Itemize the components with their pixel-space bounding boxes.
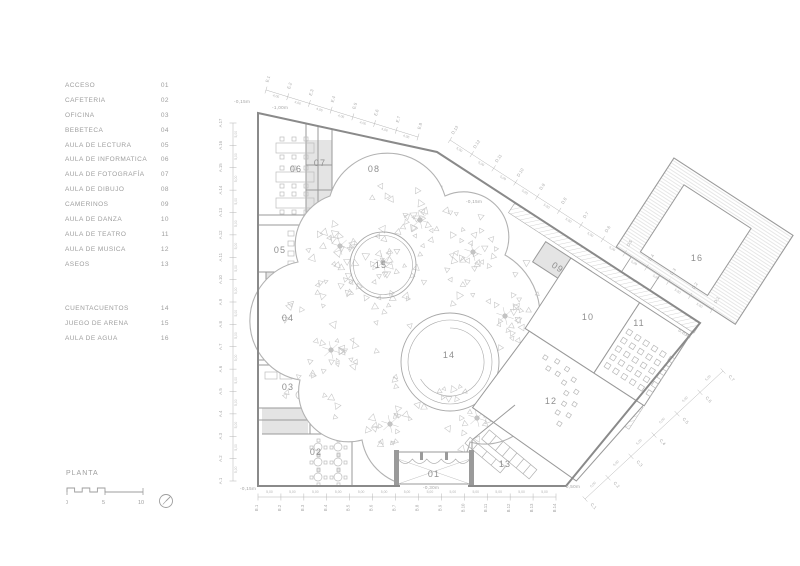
grid-axis (266, 90, 418, 137)
grid-dim: 5,00 (541, 490, 548, 494)
chair (292, 210, 296, 214)
cafe-table (334, 458, 342, 466)
room-label: 15 (375, 260, 387, 270)
room-label: 12 (545, 396, 557, 406)
grid-tick-label: A.16 (218, 140, 223, 149)
grid-dim: 5,00 (234, 399, 238, 406)
grid-tick (557, 208, 561, 214)
room-label: 16 (691, 253, 703, 263)
grid-dim: 5,00 (455, 146, 463, 153)
grid-tick-label: D.13 (450, 124, 459, 135)
grid-tick-label: D.12 (472, 138, 481, 149)
grid-tick-label: B.14 (552, 503, 557, 512)
level-annotation: -0,50m (564, 484, 580, 489)
grid-tick (601, 236, 605, 242)
desk (288, 231, 294, 236)
grid-tick-label: C.3 (635, 459, 644, 468)
grid-dim: 5,00 (681, 396, 689, 404)
desk (288, 241, 294, 246)
entrance-canopy (394, 450, 474, 485)
grid-tick-label: A.11 (218, 252, 223, 261)
grid-dim: 5,00 (450, 490, 457, 494)
grid-tick-label: B.7 (392, 504, 397, 511)
grid-tick-label: A.14 (218, 185, 223, 194)
level-annotation: -0,15m (466, 199, 482, 204)
grid-tick-label: C.7 (727, 374, 736, 383)
grid-tick-label: C.1 (589, 502, 598, 511)
grid-dim: 4,06 (294, 100, 302, 106)
chair (337, 468, 340, 471)
grid-tick-label: D.7 (582, 210, 590, 219)
grid-dim: 5,00 (589, 481, 597, 489)
grid-tick-label: B.1 (254, 504, 259, 511)
floor-plan-sheet: ACCESO01CAFETERIA02OFICINA03BEBETECA04AU… (0, 0, 800, 566)
grid-tick (514, 180, 518, 186)
grid-dim: 5,00 (234, 310, 238, 317)
grid-dim: 5,00 (635, 438, 643, 446)
grid-dim: 5,00 (518, 490, 525, 494)
chair (324, 476, 327, 479)
room-label: 07 (314, 158, 326, 168)
room-label: 11 (633, 318, 645, 328)
grid-dim: 5,00 (565, 217, 573, 224)
level-annotation: -1,00m (272, 105, 288, 110)
grid-tick-label: C.5 (681, 417, 690, 426)
chair (292, 184, 296, 188)
grid-tick-label: A.7 (218, 343, 223, 350)
grid-tick-label: B.3 (300, 504, 305, 511)
grid-tick-label: B.2 (277, 504, 282, 511)
grid-dim: 5,00 (234, 355, 238, 362)
grid-tick (535, 194, 539, 200)
level-annotation: -0,15m (240, 486, 256, 491)
grid-dim: 5,00 (704, 374, 712, 382)
chair (292, 192, 296, 196)
room-label: 05 (274, 245, 286, 255)
chair (344, 446, 347, 449)
grid-tick-label: E.3 (308, 88, 315, 96)
grid-dim: 4,06 (403, 134, 411, 140)
grid-tick-label: A.3 (218, 432, 223, 439)
grid-tick-label: A.8 (218, 321, 223, 328)
grid-tick-label: E.5 (351, 102, 358, 110)
grid-tick-label: A.10 (218, 275, 223, 284)
chair (337, 453, 340, 456)
grid-tick-label: E.2 (286, 81, 293, 89)
grid-line-E: E.14,06E.24,06E.34,06E.44,06E.54,06E.64,… (264, 75, 423, 141)
grid-tick-label: D.8 (560, 196, 568, 205)
room-label: 01 (428, 469, 440, 479)
grid-dim: 5,00 (495, 490, 502, 494)
room-label: 13 (499, 459, 511, 469)
cafe-table (334, 473, 342, 481)
grid-tick-label: E.8 (416, 122, 423, 130)
grid-line-B: B.15,00B.25,00B.35,00B.45,00B.55,00B.65,… (254, 490, 557, 512)
floor-plan-drawing: 09 -1,20m (0, 0, 800, 566)
grid-tick-label: E.7 (395, 115, 402, 123)
chair (324, 446, 327, 449)
grid-tick-label: B.10 (460, 503, 465, 512)
grid-tick-label: D.11 (494, 153, 503, 164)
chair (280, 166, 284, 170)
chair (344, 476, 347, 479)
grid-dim: 4,06 (316, 107, 324, 113)
chair (280, 192, 284, 196)
chair (310, 461, 313, 464)
room-label: 06 (290, 164, 302, 174)
grid-tick-label: A.2 (218, 455, 223, 462)
room-label: 14 (443, 350, 455, 360)
room-label: 04 (282, 313, 294, 323)
grid-dim: 5,00 (312, 490, 319, 494)
grid-dim: 5,00 (234, 444, 238, 451)
shelf (265, 372, 277, 379)
grid-tick-label: A.15 (218, 163, 223, 172)
grid-dim: 5,00 (266, 490, 273, 494)
grid-tick-label: A.4 (218, 410, 223, 417)
grid-dim: 5,00 (472, 490, 479, 494)
grid-tick-label: C.4 (658, 438, 667, 447)
grid-tick-label: A.12 (218, 230, 223, 239)
grid-tick-label: B.8 (414, 504, 419, 511)
grid-dim: 5,00 (234, 243, 238, 250)
chair (330, 476, 333, 479)
grid-dim: 5,00 (234, 466, 238, 473)
grid-dim: 5,00 (612, 460, 620, 468)
cafe-table (314, 473, 322, 481)
level-annotation: -0,15m (234, 99, 250, 104)
grid-tick-label: D.10 (516, 167, 525, 178)
room-label: 02 (310, 447, 322, 457)
grid-dim: 5,00 (335, 490, 342, 494)
chair (280, 155, 284, 159)
grid-line-A: A.15,00A.25,00A.35,00A.45,00A.55,00A.65,… (218, 118, 238, 484)
chair (330, 461, 333, 464)
grid-dim: 4,06 (359, 120, 367, 126)
grid-tick-label: A.6 (218, 365, 223, 372)
chair (310, 476, 313, 479)
grid-dim: 5,00 (427, 490, 434, 494)
chair (317, 468, 320, 471)
grid-tick-label: B.13 (529, 503, 534, 512)
grid-dim: 5,00 (234, 265, 238, 272)
grid-dim: 5,00 (477, 160, 485, 167)
grid-dim: 5,00 (234, 332, 238, 339)
chair (317, 469, 320, 472)
grid-dim: 5,00 (234, 377, 238, 384)
grid-dim: 5,00 (404, 490, 411, 494)
grid-dim: 5,00 (381, 490, 388, 494)
shrub (283, 394, 288, 399)
grid-dim: 5,00 (586, 231, 594, 238)
grid-tick-label: E.1 (264, 75, 271, 83)
chair (337, 454, 340, 457)
grid-dim: 5,00 (521, 189, 529, 196)
chair (280, 184, 284, 188)
grid-tick-label: B.5 (346, 504, 351, 511)
grid-dim: 5,00 (658, 417, 666, 425)
chair (324, 461, 327, 464)
grid-tick-label: B.4 (323, 504, 328, 511)
grid-dim: 5,00 (234, 176, 238, 183)
chair (280, 137, 284, 141)
room-label: 03 (282, 382, 294, 392)
grid-tick-label: E.4 (330, 95, 337, 103)
stair-core-floor (262, 408, 308, 434)
chair (292, 137, 296, 141)
grid-dim: 5,00 (234, 153, 238, 160)
chair (292, 155, 296, 159)
cafe-table (314, 458, 322, 466)
grid-tick-label: C.2 (612, 481, 621, 490)
grid-tick-label: A.5 (218, 388, 223, 395)
grid-tick (448, 137, 452, 143)
grid-dim: 5,00 (234, 220, 238, 227)
desk (288, 251, 294, 256)
grid-dim: 5,00 (499, 174, 507, 181)
room-label: 10 (582, 312, 594, 322)
grid-dim: 5,00 (234, 131, 238, 138)
cafe-table (334, 443, 342, 451)
chair (337, 469, 340, 472)
grid-dim: 4,06 (272, 93, 280, 99)
grid-tick-label: B.12 (506, 503, 511, 512)
grid-dim: 5,00 (543, 203, 551, 210)
shrub (523, 260, 530, 266)
chair (344, 461, 347, 464)
grid-dim: 5,00 (608, 245, 616, 252)
grid-dim: 5,00 (358, 490, 365, 494)
grid-tick-label: A.17 (218, 118, 223, 127)
grid-tick-label: D.6 (604, 224, 612, 233)
grid-tick-label: E.6 (373, 108, 380, 116)
grid-tick (470, 151, 474, 157)
grid-tick-label: A.1 (218, 477, 223, 484)
grid-dim: 5,00 (289, 490, 296, 494)
grid-tick-label: D.9 (538, 182, 546, 191)
chair (280, 210, 284, 214)
grid-dim: 5,00 (234, 422, 238, 429)
grid-tick-label: B.9 (437, 504, 442, 511)
grid-tick-label: B.6 (369, 504, 374, 511)
grid-tick (579, 222, 583, 228)
grid-dim: 4,06 (337, 113, 345, 119)
grid-tick-label: A.13 (218, 207, 223, 216)
grid-dim: 4,06 (381, 127, 389, 133)
grid-tick (492, 165, 496, 171)
room-label: 08 (368, 164, 380, 174)
chair (317, 439, 320, 442)
grid-tick-label: C.6 (704, 395, 713, 404)
grid-tick-label: B.11 (483, 503, 488, 512)
grid-tick-label: A.9 (218, 298, 223, 305)
grid-dim: 5,00 (234, 198, 238, 205)
grid-dim: 5,00 (234, 287, 238, 294)
chair (330, 446, 333, 449)
